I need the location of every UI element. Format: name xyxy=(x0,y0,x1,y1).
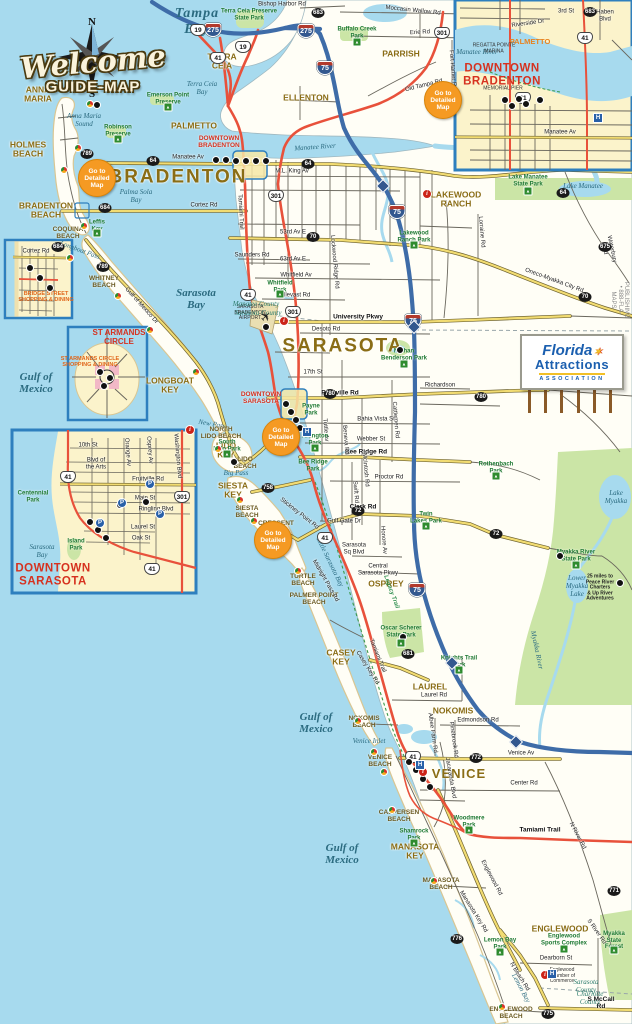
billboard-line2: Attractions xyxy=(535,358,609,371)
go-to-detailed-map-button[interactable]: Go to Detailed Map xyxy=(254,521,292,559)
go-to-detailed-map-button[interactable]: Go to Detailed Map xyxy=(424,81,462,119)
go-to-detailed-map-button[interactable]: Go to Detailed Map xyxy=(262,418,300,456)
florida-attractions-billboard: Florida✶ Attractions ASSOCIATION xyxy=(520,334,624,390)
star-icon: ✶ xyxy=(593,347,601,358)
billboard-line1: Florida✶ xyxy=(542,343,601,358)
welcome-logo-caps: GUIDE-MAP xyxy=(46,79,141,96)
map-canvas: Welcome GUIDE-MAP Florida✶ Attractions A… xyxy=(0,0,632,1024)
map-artwork xyxy=(0,0,632,1024)
billboard-line3: ASSOCIATION xyxy=(539,373,604,382)
go-to-detailed-map-button[interactable]: Go to Detailed Map xyxy=(78,159,116,197)
billboard-legs xyxy=(528,386,612,413)
